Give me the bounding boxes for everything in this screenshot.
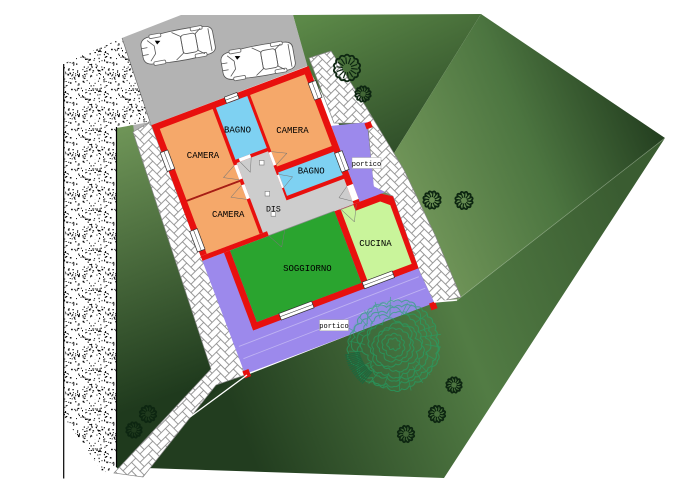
svg-text:portico: portico xyxy=(352,161,381,169)
svg-text:CAMERA: CAMERA xyxy=(187,151,220,161)
svg-text:SOGGIORNO: SOGGIORNO xyxy=(283,264,332,274)
svg-text:portico: portico xyxy=(319,323,348,331)
svg-text:DIS: DIS xyxy=(266,205,281,214)
svg-text:BAGNO: BAGNO xyxy=(224,126,251,136)
svg-text:BAGNO: BAGNO xyxy=(298,166,325,176)
svg-text:CAMERA: CAMERA xyxy=(276,126,309,136)
svg-text:CAMERA: CAMERA xyxy=(212,210,245,220)
svg-text:CUCINA: CUCINA xyxy=(359,239,392,249)
